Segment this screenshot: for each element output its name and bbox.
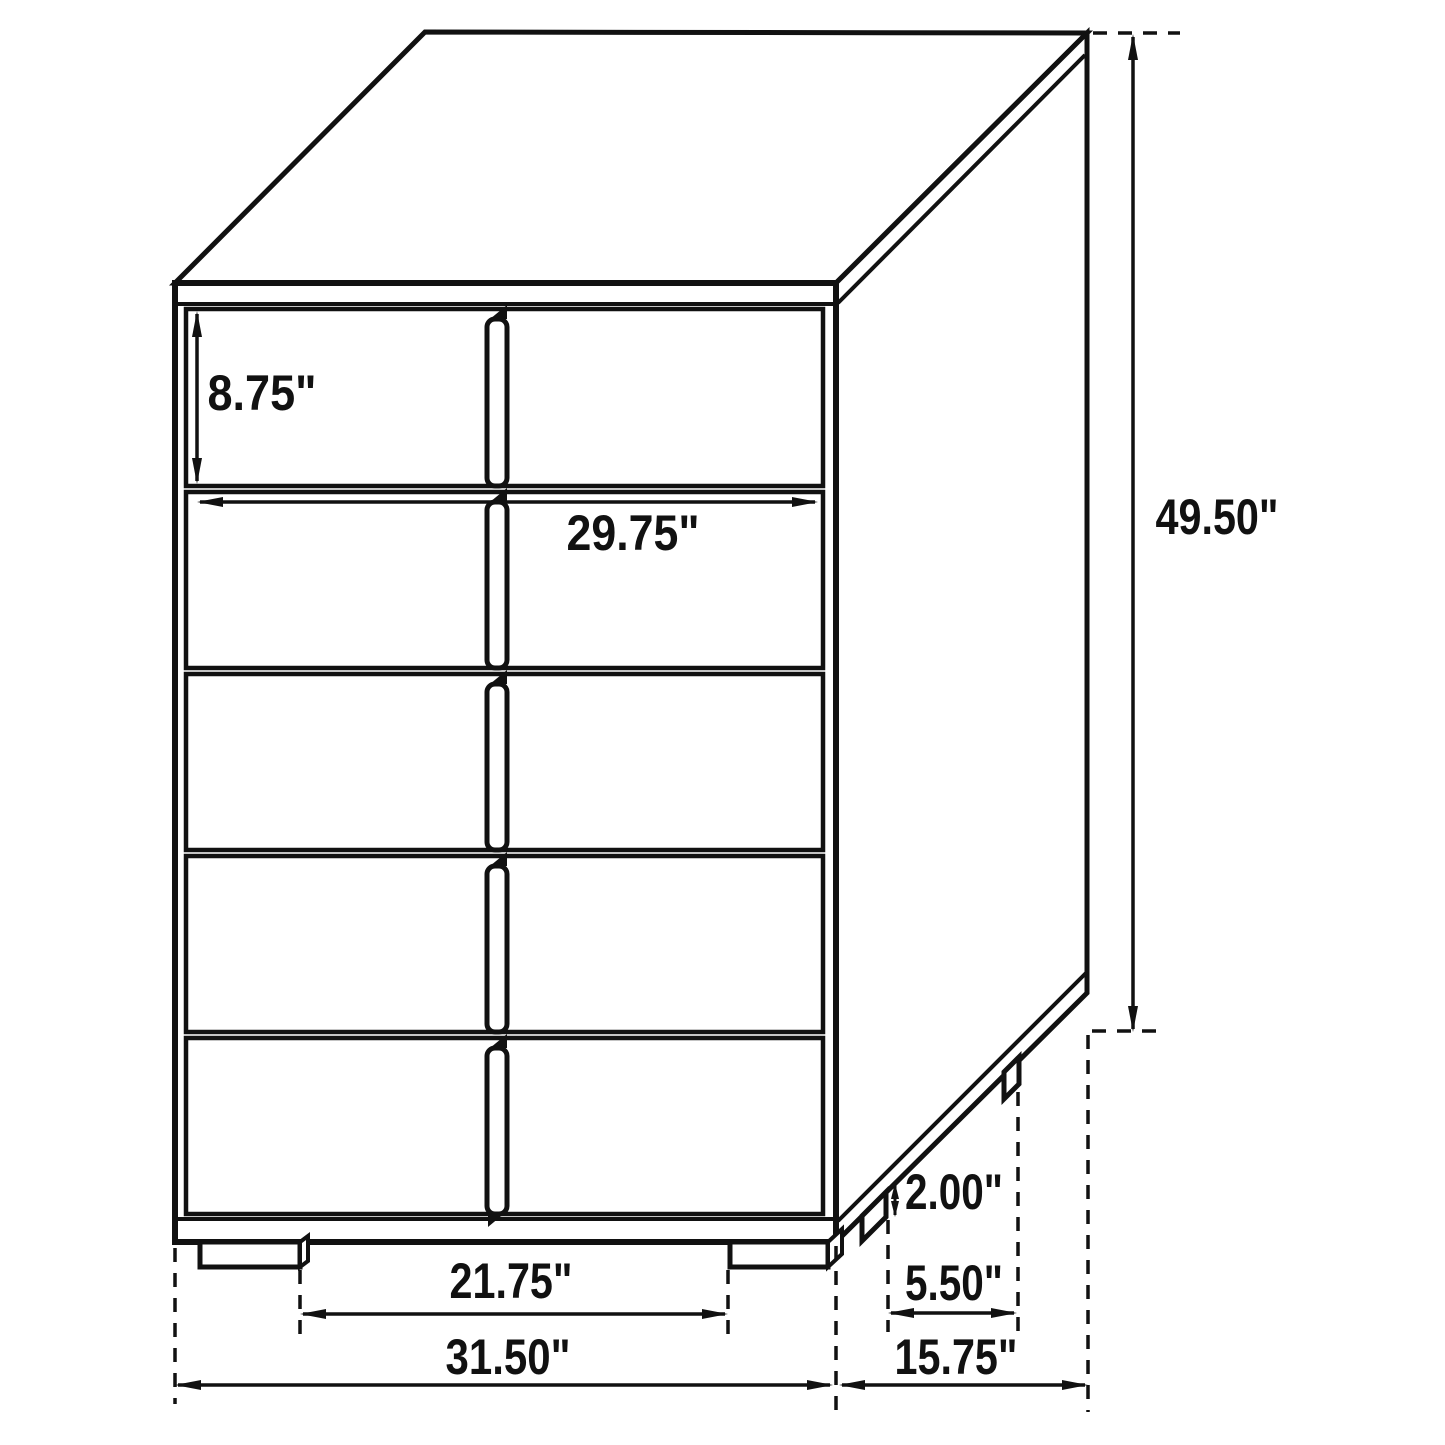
- dim-side-leg-spacing: 5.50": [888, 1255, 1017, 1318]
- handle-strip-2: [487, 502, 507, 668]
- arrow-right-icon: [702, 1309, 728, 1319]
- dim-overall-height: 49.50": [1128, 34, 1279, 1032]
- arrow-right-icon: [1062, 1380, 1088, 1390]
- dim-overall-width: 31.50": [175, 1329, 833, 1390]
- arrow-down-icon: [1128, 1006, 1138, 1032]
- arrow-left-icon: [300, 1309, 326, 1319]
- diagram-canvas: 8.75" 29.75" 49.50" 2.00" 5.50" 21.75": [0, 0, 1445, 1445]
- chest-dimension-diagram: 8.75" 29.75" 49.50" 2.00" 5.50" 21.75": [0, 0, 1445, 1445]
- dim-leg-height-label: 2.00": [905, 1164, 1003, 1220]
- dim-front-leg-spacing-label: 21.75": [450, 1253, 573, 1309]
- dim-leg-height: 2.00": [891, 1164, 1003, 1220]
- dim-overall-depth: 15.75": [839, 1329, 1088, 1390]
- dim-drawer-width-label: 29.75": [567, 505, 700, 561]
- dim-overall-height-label: 49.50": [1156, 489, 1279, 545]
- drawer-handles: [487, 305, 507, 1227]
- cabinet-drawing: [175, 32, 1087, 1267]
- arrow-right-icon: [807, 1380, 833, 1390]
- handle-strip-5: [487, 1048, 507, 1214]
- handle-strip-1: [487, 319, 507, 486]
- handle-strip-4: [487, 866, 507, 1032]
- arrow-down-icon: [891, 1201, 899, 1217]
- handle-strip-3: [487, 684, 507, 850]
- dim-overall-depth-label: 15.75": [895, 1329, 1018, 1385]
- arrow-left-icon: [175, 1380, 201, 1390]
- dim-overall-width-label: 31.50": [446, 1329, 571, 1385]
- front-left-leg: [200, 1242, 300, 1267]
- dim-drawer-height-label: 8.75": [208, 365, 317, 421]
- arrow-up-icon: [1128, 34, 1138, 60]
- dim-front-leg-spacing: 21.75": [300, 1253, 728, 1319]
- dim-side-leg-spacing-label: 5.50": [905, 1255, 1003, 1311]
- front-left-leg-side: [300, 1236, 308, 1267]
- arrow-left-icon: [839, 1380, 865, 1390]
- front-right-leg: [730, 1242, 828, 1267]
